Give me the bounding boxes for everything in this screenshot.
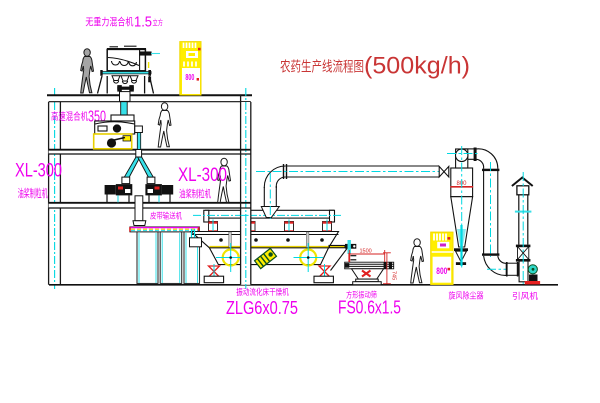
- svg-text:XL-300: XL-300: [15, 161, 62, 182]
- svg-text:800: 800: [436, 266, 447, 277]
- svg-text:1.5: 1.5: [134, 14, 152, 31]
- svg-text:振动流化床干燥机: 振动流化床干燥机: [236, 287, 289, 297]
- svg-text:油桨制粒机: 油桨制粒机: [179, 188, 211, 201]
- svg-text:农药生产线流程图: 农药生产线流程图: [280, 59, 364, 75]
- svg-text:1500: 1500: [360, 248, 372, 254]
- svg-text:引风机: 引风机: [512, 291, 538, 301]
- svg-text:立方: 立方: [153, 17, 164, 27]
- svg-text:无重力混合机: 无重力混合机: [85, 16, 133, 29]
- svg-text:800: 800: [185, 72, 194, 82]
- svg-text:ZLG6x0.75: ZLG6x0.75: [226, 298, 298, 318]
- svg-text:FS0.6x1.5: FS0.6x1.5: [338, 298, 401, 318]
- svg-text:高速混合机: 高速混合机: [51, 110, 88, 123]
- svg-text:(500kg/h): (500kg/h): [364, 53, 470, 80]
- svg-text:油桨制粒机: 油桨制粒机: [18, 186, 48, 200]
- svg-text:皮带输送机: 皮带输送机: [150, 211, 182, 221]
- svg-text:XL-300: XL-300: [178, 165, 227, 186]
- svg-text:旋风除尘器: 旋风除尘器: [449, 291, 484, 301]
- svg-text:745: 745: [391, 271, 397, 280]
